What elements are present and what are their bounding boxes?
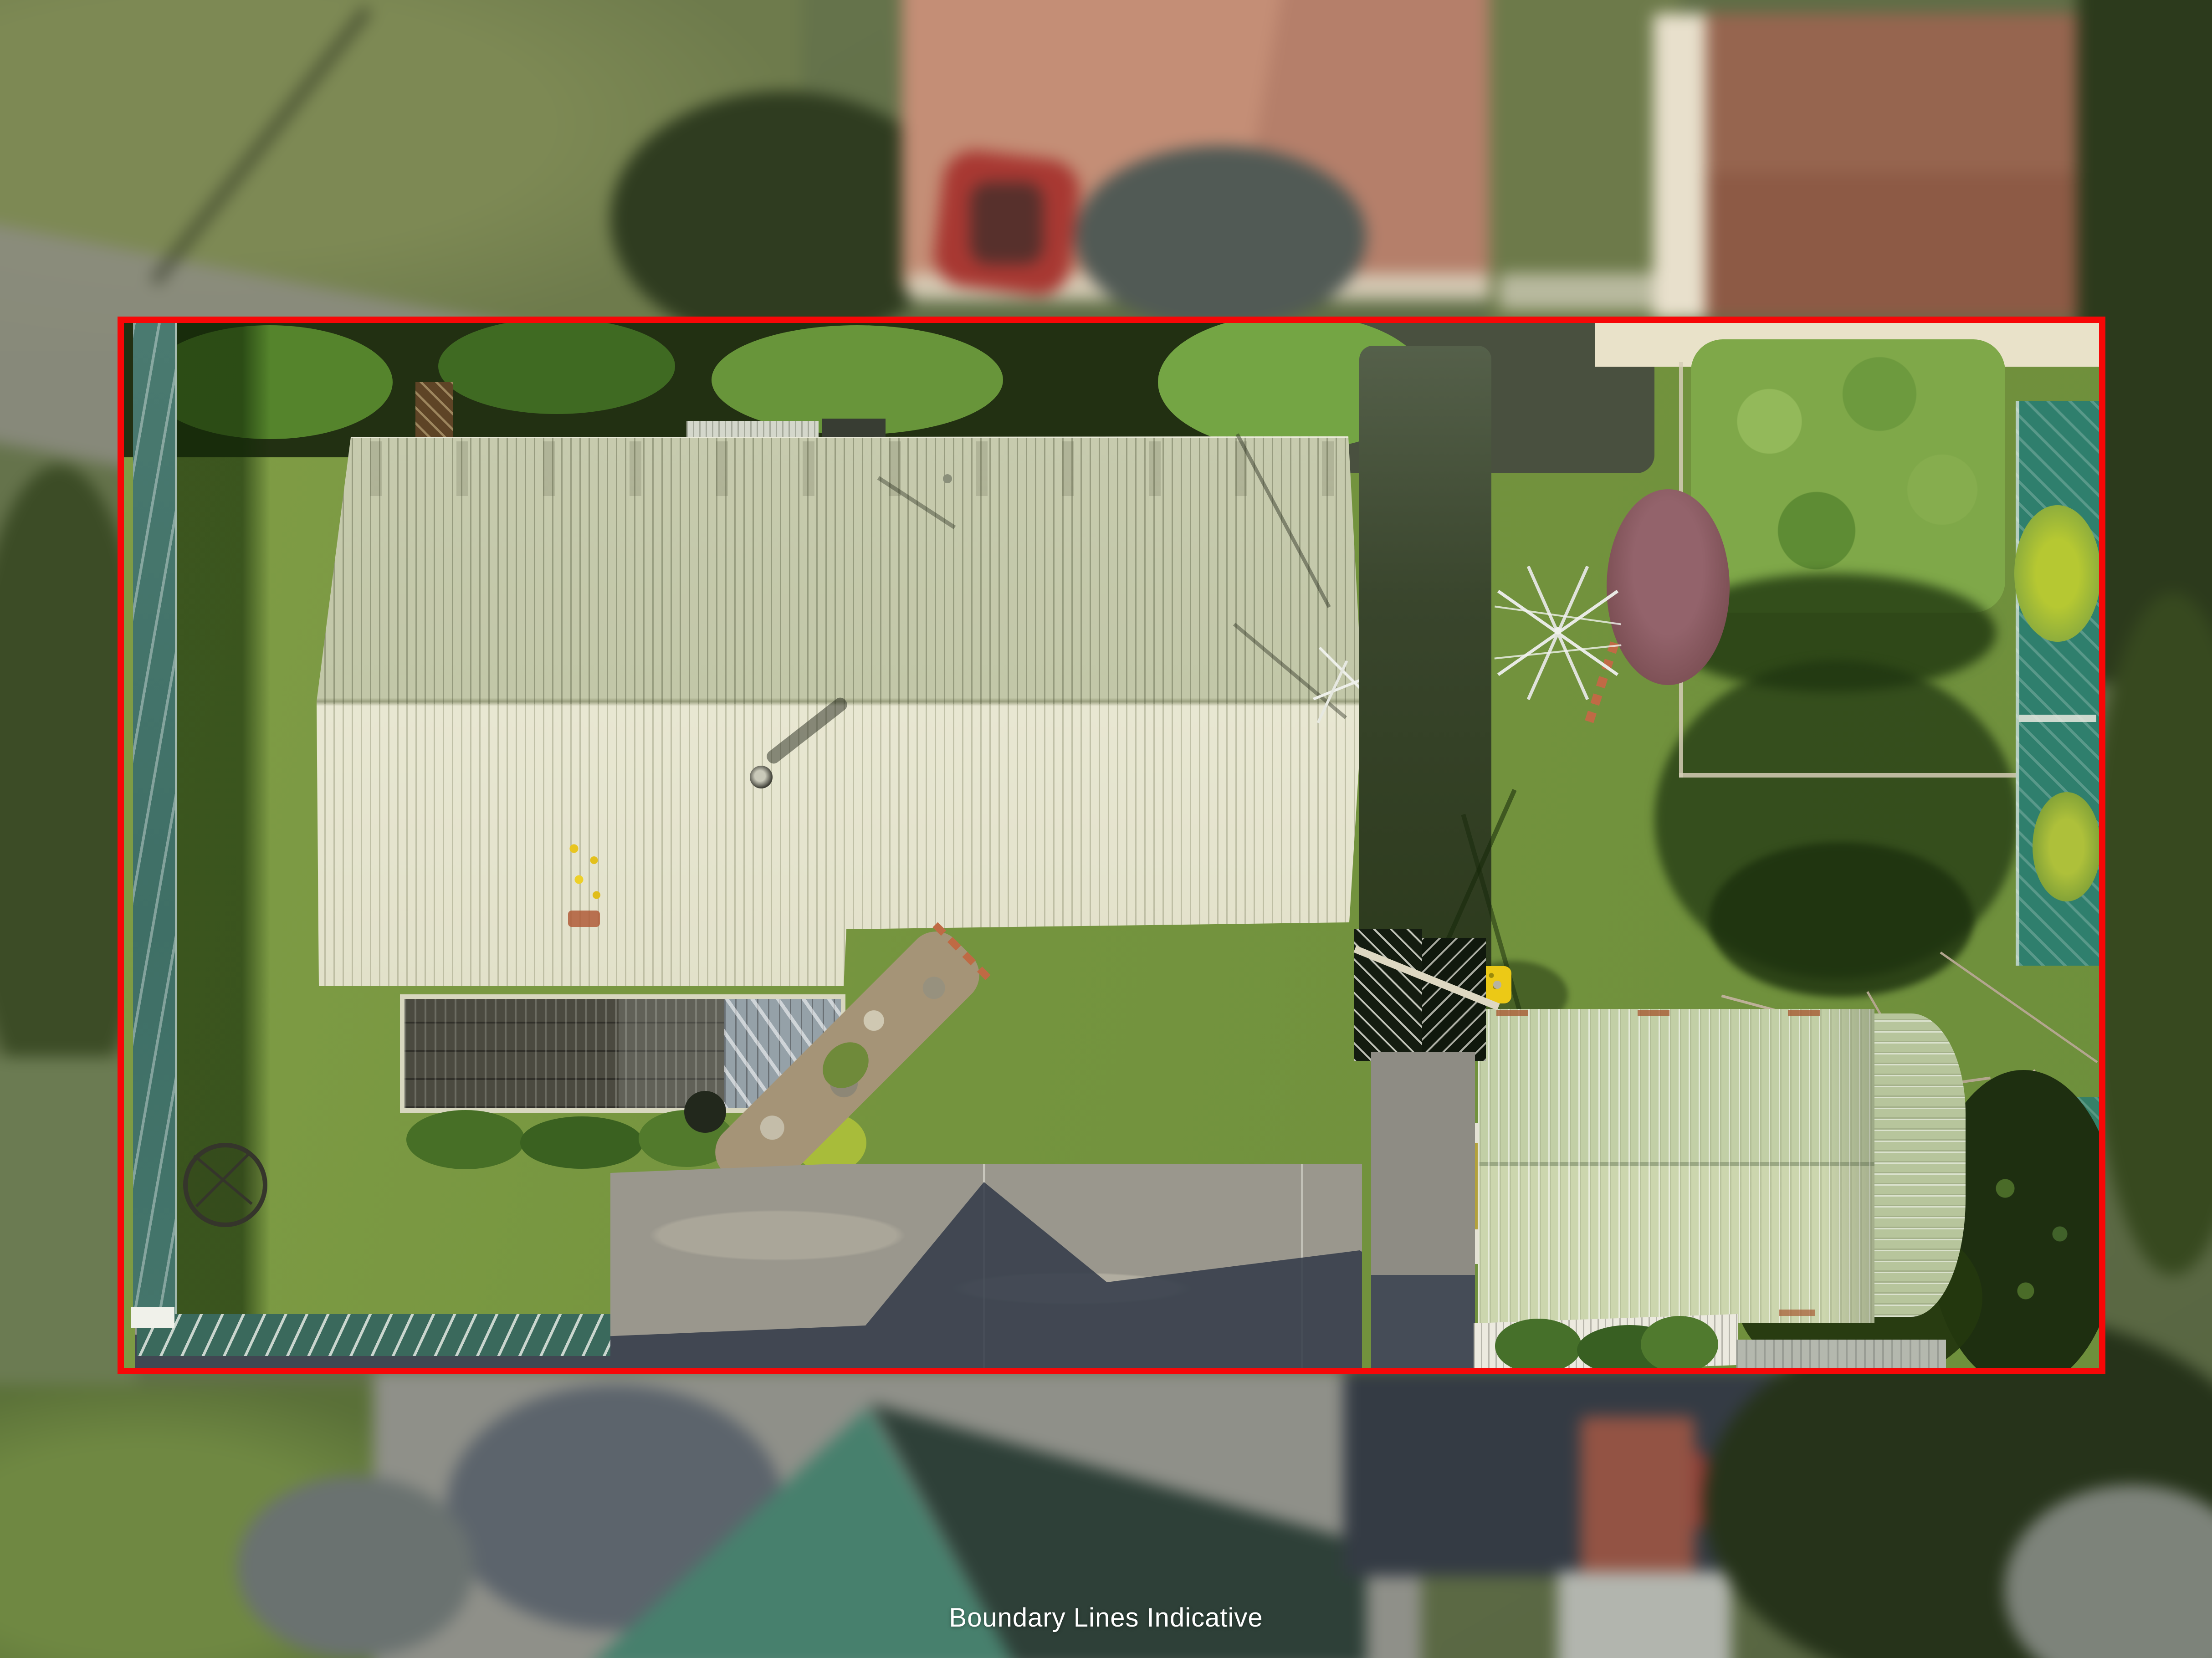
boundary-outline	[118, 317, 2105, 1374]
grey-metal-roof	[1558, 1571, 1731, 1658]
brick-wall	[1581, 1417, 1695, 1585]
white-fence-bits	[1499, 273, 1663, 310]
shadowed-drive-top	[1075, 146, 1367, 328]
caption: Boundary Lines Indicative	[949, 1602, 1263, 1633]
bottom-tree-shadow-2	[237, 1476, 474, 1658]
neighbour-shed-lower	[1706, 173, 2114, 319]
red-car-roof	[970, 182, 1043, 264]
aerial-photo: Boundary Lines Indicative	[0, 0, 2212, 1658]
